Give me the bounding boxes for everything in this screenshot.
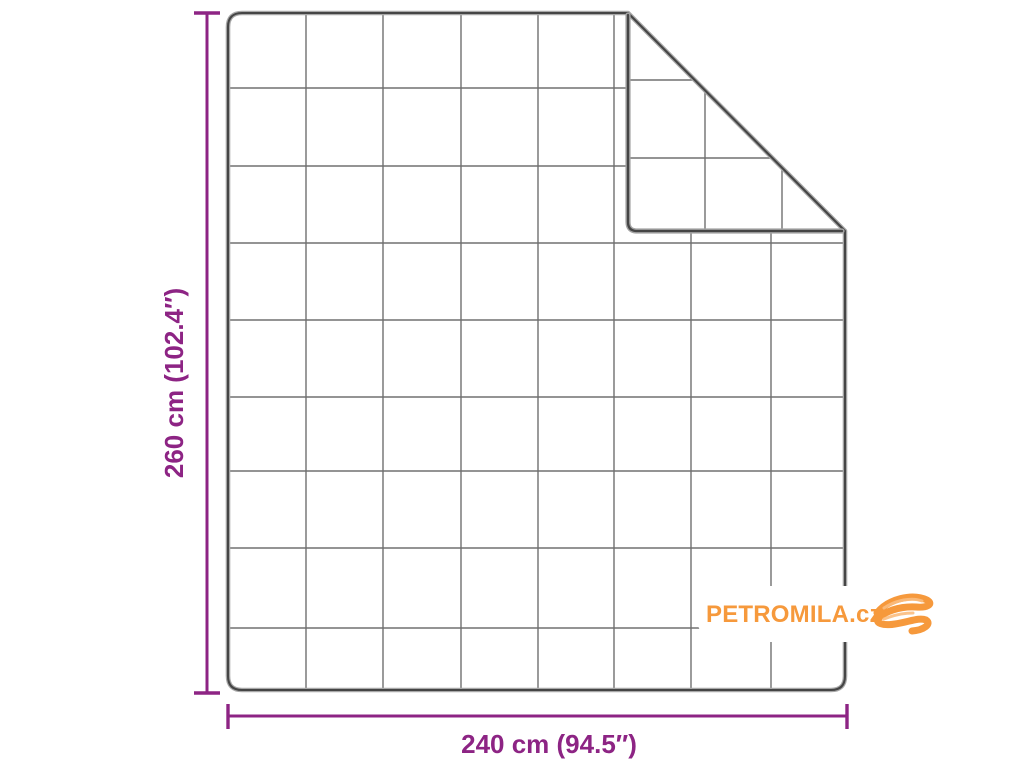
height-dimension-label: 260 cm (102.4″) bbox=[159, 288, 189, 478]
dimension-diagram: 260 cm (102.4″) 240 cm (94.5″) PETROMILA… bbox=[0, 0, 1024, 768]
logo: PETROMILA.cz bbox=[696, 586, 950, 642]
product-dimension-image: 260 cm (102.4″) 240 cm (94.5″) PETROMILA… bbox=[0, 0, 1024, 768]
dimension-line-height bbox=[194, 13, 220, 693]
dimension-line-width bbox=[228, 704, 847, 729]
width-dimension-label: 240 cm (94.5″) bbox=[461, 729, 637, 759]
petromila-logo-text: PETROMILA.cz bbox=[706, 601, 882, 628]
